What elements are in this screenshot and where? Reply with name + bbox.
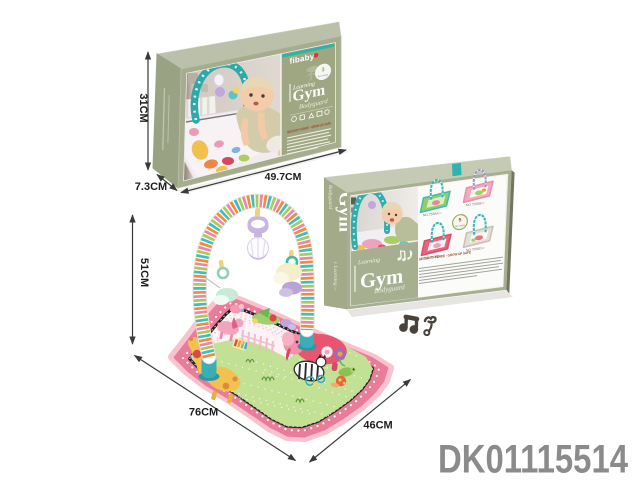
svg-text:♪ Learning ››: ♪ Learning ››	[332, 261, 338, 291]
svg-text:76CM: 76CM	[189, 407, 218, 419]
svg-text:51CM: 51CM	[138, 258, 150, 287]
svg-text:3: 3	[321, 67, 324, 74]
svg-text:7.3CM: 7.3CM	[135, 181, 167, 193]
svg-text:5: 5	[459, 217, 462, 223]
svg-text:31CM: 31CM	[137, 93, 149, 122]
svg-text:46CM: 46CM	[363, 420, 392, 432]
svg-text:DK01115514: DK01115514	[438, 438, 629, 480]
svg-text:49.7CM: 49.7CM	[265, 171, 302, 183]
svg-text:Bodyguard: Bodyguard	[327, 185, 333, 209]
